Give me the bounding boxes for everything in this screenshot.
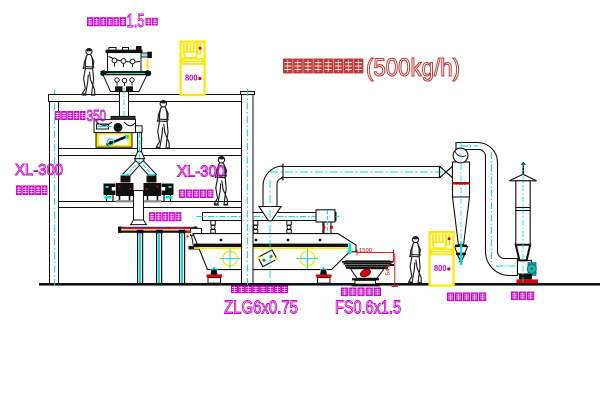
svg-text:1500: 1500 <box>359 248 372 254</box>
svg-text:ZLG6x0.75: ZLG6x0.75 <box>224 297 298 318</box>
svg-text:350: 350 <box>87 108 107 125</box>
svg-text:XL-300: XL-300 <box>177 164 225 181</box>
svg-text:800: 800 <box>434 263 447 273</box>
svg-text:1.5: 1.5 <box>127 11 145 31</box>
svg-text:XL-300: XL-300 <box>15 162 63 179</box>
svg-text:545: 545 <box>386 264 392 275</box>
svg-text:(500kg/h): (500kg/h) <box>366 54 460 82</box>
svg-text:FS0.6x1.5: FS0.6x1.5 <box>335 297 401 318</box>
svg-text:800: 800 <box>185 73 198 83</box>
